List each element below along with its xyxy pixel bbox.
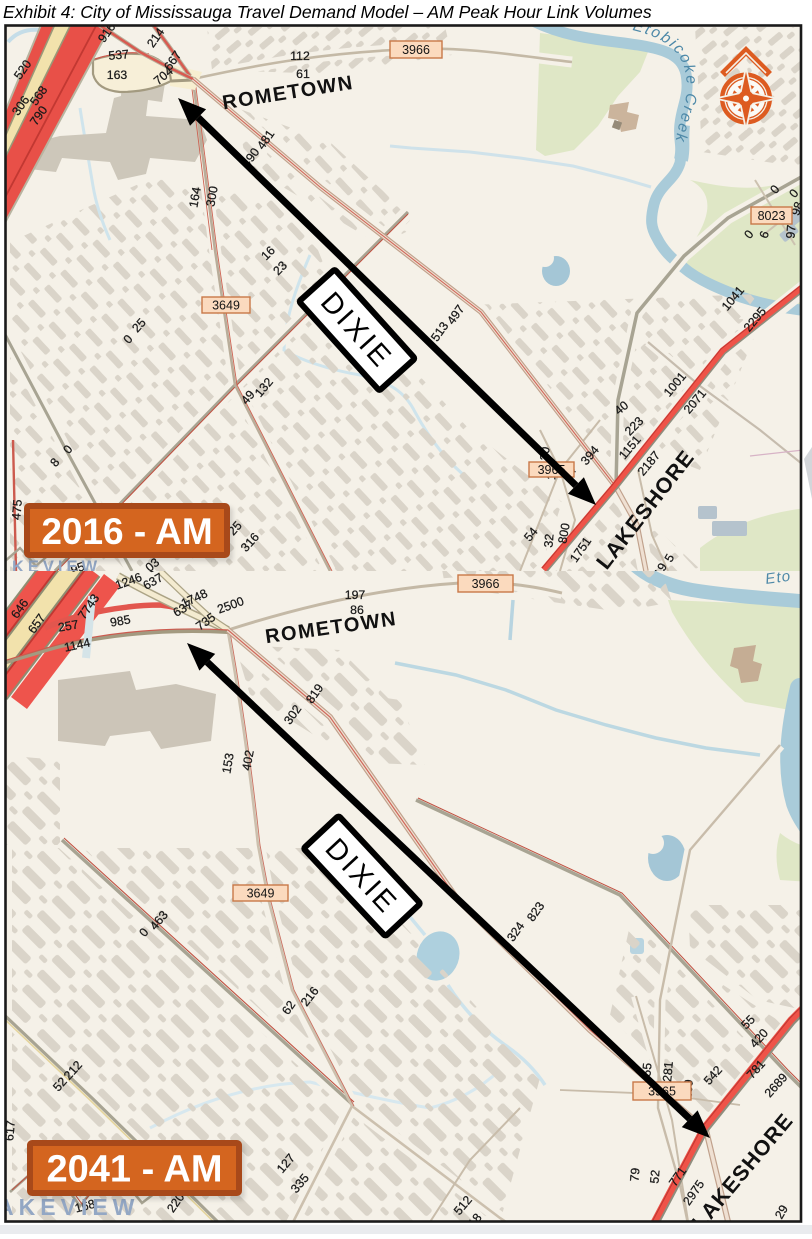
svg-text:3649: 3649 bbox=[212, 298, 240, 312]
svg-text:163: 163 bbox=[107, 68, 128, 82]
svg-text:3966: 3966 bbox=[402, 43, 430, 57]
svg-text:Exhibit 4: City of Mississauga: Exhibit 4: City of Mississauga Travel De… bbox=[3, 2, 652, 22]
svg-text:79: 79 bbox=[627, 1167, 642, 1182]
svg-text:32: 32 bbox=[541, 533, 556, 548]
svg-text:97: 97 bbox=[783, 224, 798, 239]
svg-text:537: 537 bbox=[108, 47, 130, 63]
svg-text:52: 52 bbox=[647, 1169, 662, 1184]
svg-text:197: 197 bbox=[345, 588, 366, 602]
svg-text:112: 112 bbox=[290, 49, 310, 63]
svg-text:3966: 3966 bbox=[472, 577, 500, 591]
svg-text:281: 281 bbox=[660, 1061, 676, 1083]
svg-text:8023: 8023 bbox=[758, 209, 786, 223]
svg-text:3649: 3649 bbox=[247, 886, 275, 900]
svg-text:2016 - AM: 2016 - AM bbox=[41, 511, 212, 552]
svg-text:475: 475 bbox=[9, 499, 25, 521]
svg-text:2041 - AM: 2041 - AM bbox=[47, 1149, 223, 1191]
